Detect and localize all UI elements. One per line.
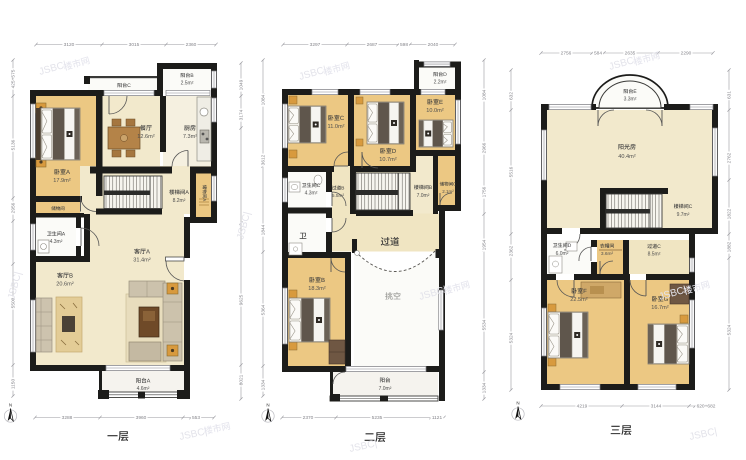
svg-text:8.5m²: 8.5m² <box>648 252 661 258</box>
svg-text:2.5m²: 2.5m² <box>181 81 194 87</box>
svg-text:40.4m²: 40.4m² <box>618 154 636 160</box>
svg-text:2360: 2360 <box>186 42 197 48</box>
svg-text:4.3m²: 4.3m² <box>305 191 318 197</box>
svg-text:553: 553 <box>192 415 200 421</box>
svg-text:4219: 4219 <box>577 404 588 410</box>
svg-text:3960: 3960 <box>136 415 147 421</box>
svg-text:3.6m²: 3.6m² <box>601 251 614 257</box>
svg-text:631: 631 <box>727 91 733 99</box>
svg-text:1954: 1954 <box>482 239 488 250</box>
svg-text:2362: 2362 <box>509 245 515 256</box>
svg-text:22.5m²: 22.5m² <box>570 297 588 303</box>
svg-text:1882: 1882 <box>727 241 733 252</box>
svg-text:3174: 3174 <box>239 109 245 120</box>
svg-text:4.3m²: 4.3m² <box>50 239 63 245</box>
svg-text:1084: 1084 <box>482 89 488 100</box>
svg-text:2687: 2687 <box>367 42 378 48</box>
svg-text:8.2m²: 8.2m² <box>173 198 186 204</box>
svg-text:620+682: 620+682 <box>697 404 716 410</box>
svg-text:16.7m²: 16.7m² <box>651 305 669 311</box>
svg-text:1756: 1756 <box>482 186 488 197</box>
svg-text:9625: 9625 <box>239 294 245 305</box>
svg-text:2040: 2040 <box>428 42 439 48</box>
svg-text:5324: 5324 <box>727 324 733 335</box>
svg-text:5.5m²: 5.5m² <box>332 193 345 199</box>
svg-text:5516: 5516 <box>509 166 515 177</box>
svg-text:1334: 1334 <box>482 382 488 393</box>
svg-text:20.6m²: 20.6m² <box>56 282 74 288</box>
svg-text:2.1m²: 2.1m² <box>442 189 454 194</box>
svg-text:3120: 3120 <box>64 42 75 48</box>
svg-text:1844: 1844 <box>261 224 267 235</box>
svg-text:3297: 3297 <box>310 42 321 48</box>
svg-text:5235: 5235 <box>372 415 383 421</box>
svg-text:18.3m²: 18.3m² <box>308 286 326 292</box>
svg-text:9.7m²: 9.7m² <box>677 212 690 218</box>
svg-text:7.0m²: 7.0m² <box>379 386 392 392</box>
svg-text:8021: 8021 <box>239 374 245 385</box>
svg-text:11.0m²: 11.0m² <box>328 124 345 130</box>
svg-text:5136: 5136 <box>11 139 17 150</box>
svg-text:N: N <box>266 403 269 408</box>
svg-text:3288: 3288 <box>62 415 73 421</box>
svg-text:2966: 2966 <box>482 142 488 153</box>
svg-text:1049: 1049 <box>239 79 245 90</box>
svg-text:7.3m²: 7.3m² <box>183 134 197 140</box>
svg-text:425+575: 425+575 <box>11 69 17 88</box>
svg-text:2370: 2370 <box>303 415 314 421</box>
svg-text:1084: 1084 <box>261 94 267 105</box>
svg-text:2756: 2756 <box>561 51 572 57</box>
svg-text:12.6m²: 12.6m² <box>137 134 155 140</box>
svg-text:1334: 1334 <box>261 379 267 390</box>
svg-text:3144: 3144 <box>651 404 662 410</box>
svg-text:5324: 5324 <box>509 332 515 343</box>
svg-text:632: 632 <box>509 92 515 100</box>
svg-text:N: N <box>9 403 12 408</box>
svg-text:1150: 1150 <box>11 379 17 390</box>
svg-text:2956: 2956 <box>11 202 17 213</box>
svg-text:2.2m²: 2.2m² <box>434 80 447 86</box>
svg-text:N: N <box>516 401 519 406</box>
svg-text:5364: 5364 <box>261 304 267 315</box>
svg-text:598: 598 <box>400 42 408 48</box>
svg-text:4.6m²: 4.6m² <box>137 386 150 392</box>
svg-text:1121: 1121 <box>432 415 443 421</box>
svg-text:1822: 1822 <box>727 208 733 219</box>
svg-text:584: 584 <box>594 51 602 57</box>
svg-text:17.9m²: 17.9m² <box>53 178 71 184</box>
svg-text:31.4m²: 31.4m² <box>133 258 151 264</box>
svg-text:3.3m²: 3.3m² <box>624 97 637 103</box>
svg-text:10.0m²: 10.0m² <box>426 108 444 114</box>
svg-text:5534: 5534 <box>482 319 488 330</box>
svg-text:3015: 3015 <box>129 42 140 48</box>
svg-text:3612: 3612 <box>261 154 267 165</box>
svg-text:2762: 2762 <box>727 152 733 163</box>
svg-text:2290: 2290 <box>681 51 692 57</box>
svg-text:10.7m²: 10.7m² <box>379 157 397 163</box>
svg-text:7.0m²: 7.0m² <box>417 193 430 199</box>
svg-text:6.0m²: 6.0m² <box>556 251 569 257</box>
